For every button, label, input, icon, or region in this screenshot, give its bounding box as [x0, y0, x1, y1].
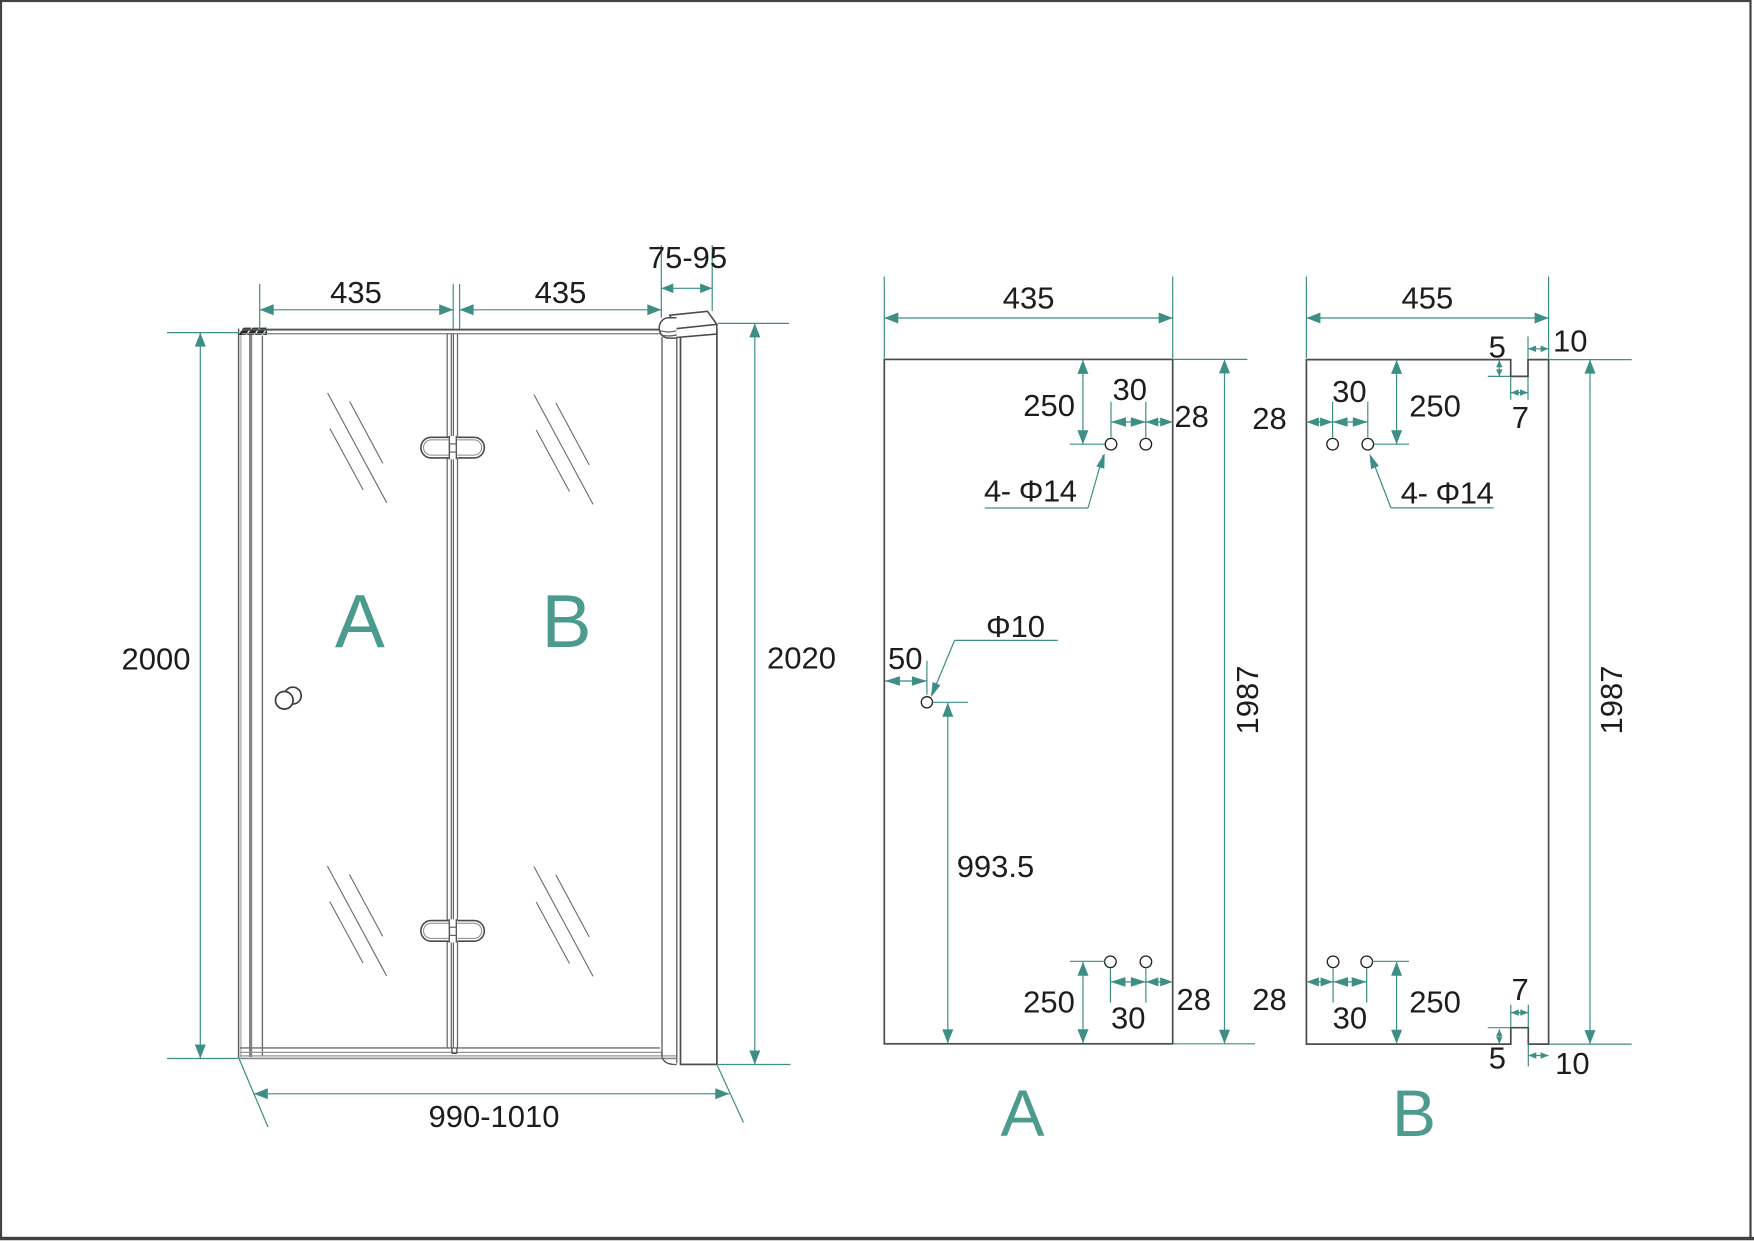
- svg-text:50: 50: [888, 641, 922, 676]
- svg-text:5: 5: [1489, 330, 1506, 365]
- svg-text:10: 10: [1553, 323, 1587, 358]
- svg-text:4- Φ14: 4- Φ14: [1401, 476, 1494, 511]
- svg-text:28: 28: [1174, 399, 1208, 434]
- svg-text:7: 7: [1511, 972, 1528, 1007]
- svg-text:30: 30: [1111, 1001, 1145, 1036]
- svg-text:Φ10: Φ10: [986, 609, 1045, 644]
- svg-text:1987: 1987: [1230, 666, 1265, 735]
- svg-text:7: 7: [1512, 400, 1529, 435]
- svg-text:4- Φ14: 4- Φ14: [984, 474, 1077, 509]
- svg-text:435: 435: [535, 275, 587, 310]
- svg-text:990-1010: 990-1010: [428, 1099, 559, 1134]
- svg-text:A: A: [335, 579, 385, 663]
- svg-text:435: 435: [330, 275, 382, 310]
- svg-text:10: 10: [1555, 1046, 1589, 1081]
- svg-text:250: 250: [1023, 984, 1075, 1019]
- svg-text:30: 30: [1332, 374, 1366, 409]
- svg-text:250: 250: [1409, 984, 1461, 1019]
- svg-text:B: B: [1392, 1076, 1436, 1150]
- svg-text:993.5: 993.5: [957, 849, 1035, 884]
- svg-text:28: 28: [1252, 401, 1286, 436]
- svg-text:30: 30: [1113, 372, 1147, 407]
- svg-text:75-95: 75-95: [648, 240, 727, 275]
- svg-text:455: 455: [1402, 281, 1454, 316]
- svg-text:28: 28: [1252, 982, 1286, 1017]
- svg-text:2020: 2020: [767, 641, 836, 676]
- svg-text:28: 28: [1177, 982, 1211, 1017]
- svg-text:B: B: [541, 579, 591, 663]
- svg-text:30: 30: [1333, 1001, 1367, 1036]
- svg-text:250: 250: [1409, 388, 1461, 423]
- svg-text:250: 250: [1023, 388, 1075, 423]
- svg-text:A: A: [1000, 1076, 1044, 1150]
- svg-text:2000: 2000: [122, 642, 191, 677]
- svg-text:435: 435: [1003, 281, 1055, 316]
- svg-text:1987: 1987: [1594, 666, 1629, 735]
- svg-text:5: 5: [1489, 1041, 1506, 1076]
